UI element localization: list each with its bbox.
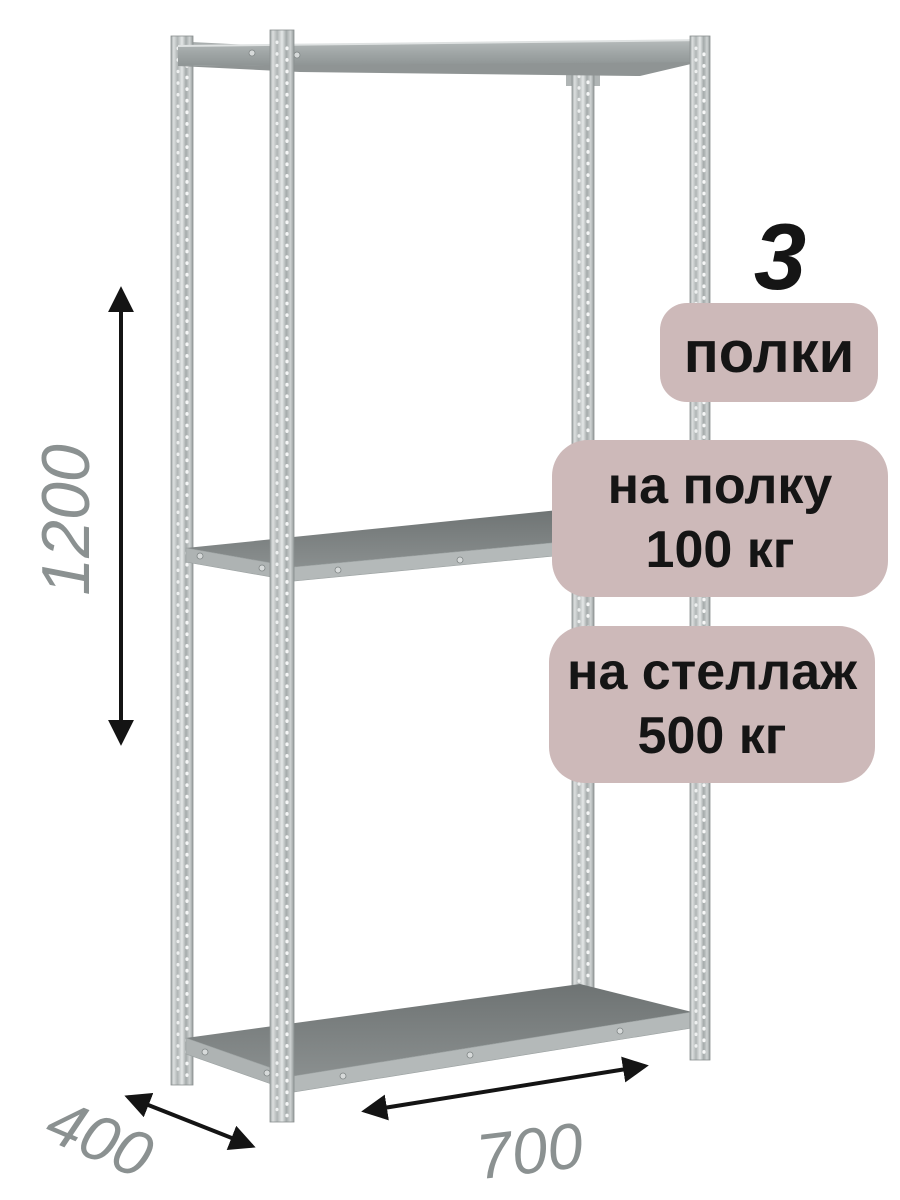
badge-shelf-load: на полку 100 кг xyxy=(552,440,888,597)
shelving-rack-graphic xyxy=(0,0,900,1200)
product-image: 1200 400 700 3 полки на полку 100 кг на … xyxy=(0,0,900,1200)
badge-rack-load-line2: 500 кг xyxy=(638,705,787,768)
badge-shelves-label: полки xyxy=(684,319,855,386)
rack-top-shelf xyxy=(178,40,708,76)
rack-bottom-shelf xyxy=(186,984,692,1092)
shelf-count-number: 3 xyxy=(700,210,860,310)
badge-shelf-load-line1: на полку xyxy=(608,455,833,518)
badge-rack-load-line1: на стеллаж xyxy=(567,641,857,704)
height-dimension-label: 1200 xyxy=(32,360,108,680)
rack-post-front-left xyxy=(270,30,294,1122)
badge-shelves: полки xyxy=(660,303,878,402)
badge-shelf-load-line2: 100 кг xyxy=(646,519,795,582)
badge-rack-load: на стеллаж 500 кг xyxy=(549,626,875,783)
